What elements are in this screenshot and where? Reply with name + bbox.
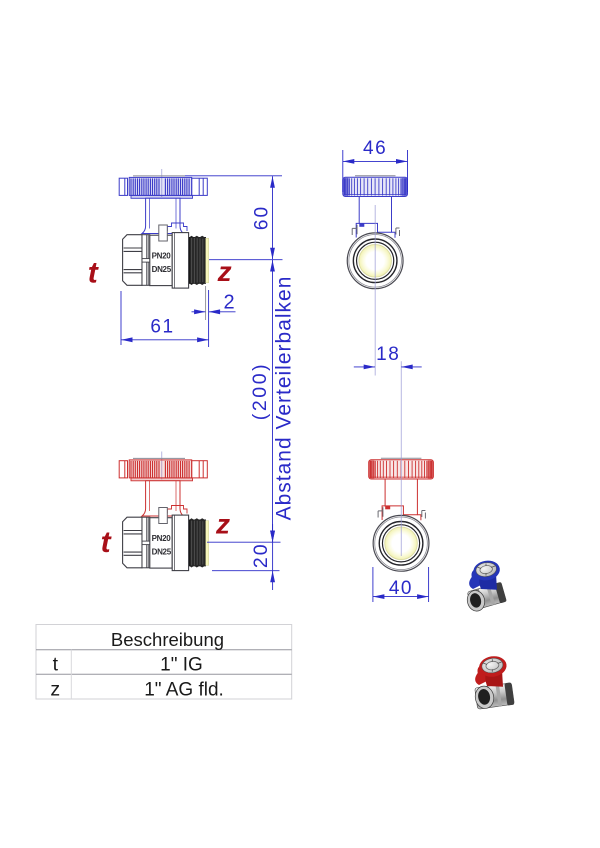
svg-text:t: t [53,654,59,676]
svg-text:1" IG: 1" IG [160,655,203,676]
svg-text:1" AG fld.: 1" AG fld. [144,680,224,701]
svg-text:20: 20 [250,542,272,568]
svg-text:46: 46 [363,138,387,159]
svg-text:61: 61 [150,317,174,338]
svg-text:t: t [88,257,100,290]
svg-text:60: 60 [251,205,272,230]
svg-text:40: 40 [389,578,413,599]
svg-text:2: 2 [223,291,234,313]
svg-text:t: t [101,526,113,559]
svg-text:z: z [217,256,232,287]
svg-text:(200): (200) [249,362,271,421]
svg-text:18: 18 [376,344,400,365]
svg-text:z: z [215,508,230,539]
svg-text:z: z [50,679,60,701]
svg-text:Beschreibung: Beschreibung [111,629,224,650]
svg-text:Abstand Verteilerbalken: Abstand Verteilerbalken [273,276,296,521]
